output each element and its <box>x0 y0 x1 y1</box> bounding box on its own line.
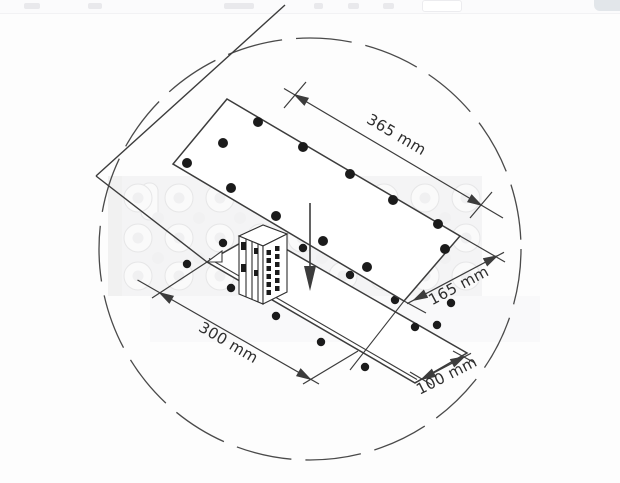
block-slot <box>275 246 280 251</box>
mounting-hole <box>433 219 443 229</box>
mounting-hole <box>433 321 441 329</box>
block-slot <box>267 250 272 255</box>
grommet-center <box>133 233 144 244</box>
mounting-hole <box>183 260 191 268</box>
arrowhead <box>484 256 497 266</box>
mounting-hole <box>271 211 281 221</box>
block-slot <box>254 270 258 276</box>
block-slot <box>241 242 246 250</box>
bracket-logo-block <box>239 225 287 304</box>
mounting-hole <box>362 262 372 272</box>
dimension-label-365: 365 mm <box>364 110 430 159</box>
extension-line <box>303 351 358 384</box>
mounting-hole <box>219 239 227 247</box>
arrowhead <box>295 95 308 105</box>
block-slot <box>267 282 272 287</box>
block-slot <box>267 266 272 271</box>
mounting-hole <box>218 138 228 148</box>
block-slot <box>254 248 258 254</box>
mounting-hole <box>346 271 354 279</box>
block-slot <box>275 262 280 267</box>
mounting-hole <box>226 183 236 193</box>
block-slot <box>275 254 280 259</box>
mounting-hole <box>298 142 308 152</box>
grommet-center <box>420 193 431 204</box>
block-slot <box>275 286 280 291</box>
block-slot <box>267 258 272 263</box>
grommet-small <box>193 212 205 224</box>
mounting-hole <box>388 195 398 205</box>
mounting-hole <box>440 244 450 254</box>
mounting-hole <box>361 363 369 371</box>
screenshot-root: 365 mm 165 mm 300 mm 100 mm <box>0 0 620 483</box>
grommet-small <box>152 212 164 224</box>
mounting-hole <box>299 244 307 252</box>
grommet-small <box>152 252 164 264</box>
technical-diagram: 365 mm 165 mm 300 mm 100 mm <box>0 0 620 483</box>
block-slot <box>241 264 246 272</box>
grommet-small <box>234 212 246 224</box>
grommet-center <box>174 193 185 204</box>
block-slot <box>267 274 272 279</box>
mounting-hole <box>318 236 328 246</box>
mounting-hole <box>253 117 263 127</box>
mounting-hole <box>272 312 280 320</box>
mounting-hole <box>411 323 419 331</box>
mounting-hole <box>182 158 192 168</box>
grommet-small <box>193 252 205 264</box>
arrowhead <box>297 369 310 379</box>
block-slot <box>267 290 272 295</box>
mounting-hole <box>317 338 325 346</box>
block-slot <box>275 278 280 283</box>
mounting-hole <box>345 169 355 179</box>
grommet-center <box>133 193 144 204</box>
block-slot <box>275 270 280 275</box>
mounting-hole <box>227 284 235 292</box>
